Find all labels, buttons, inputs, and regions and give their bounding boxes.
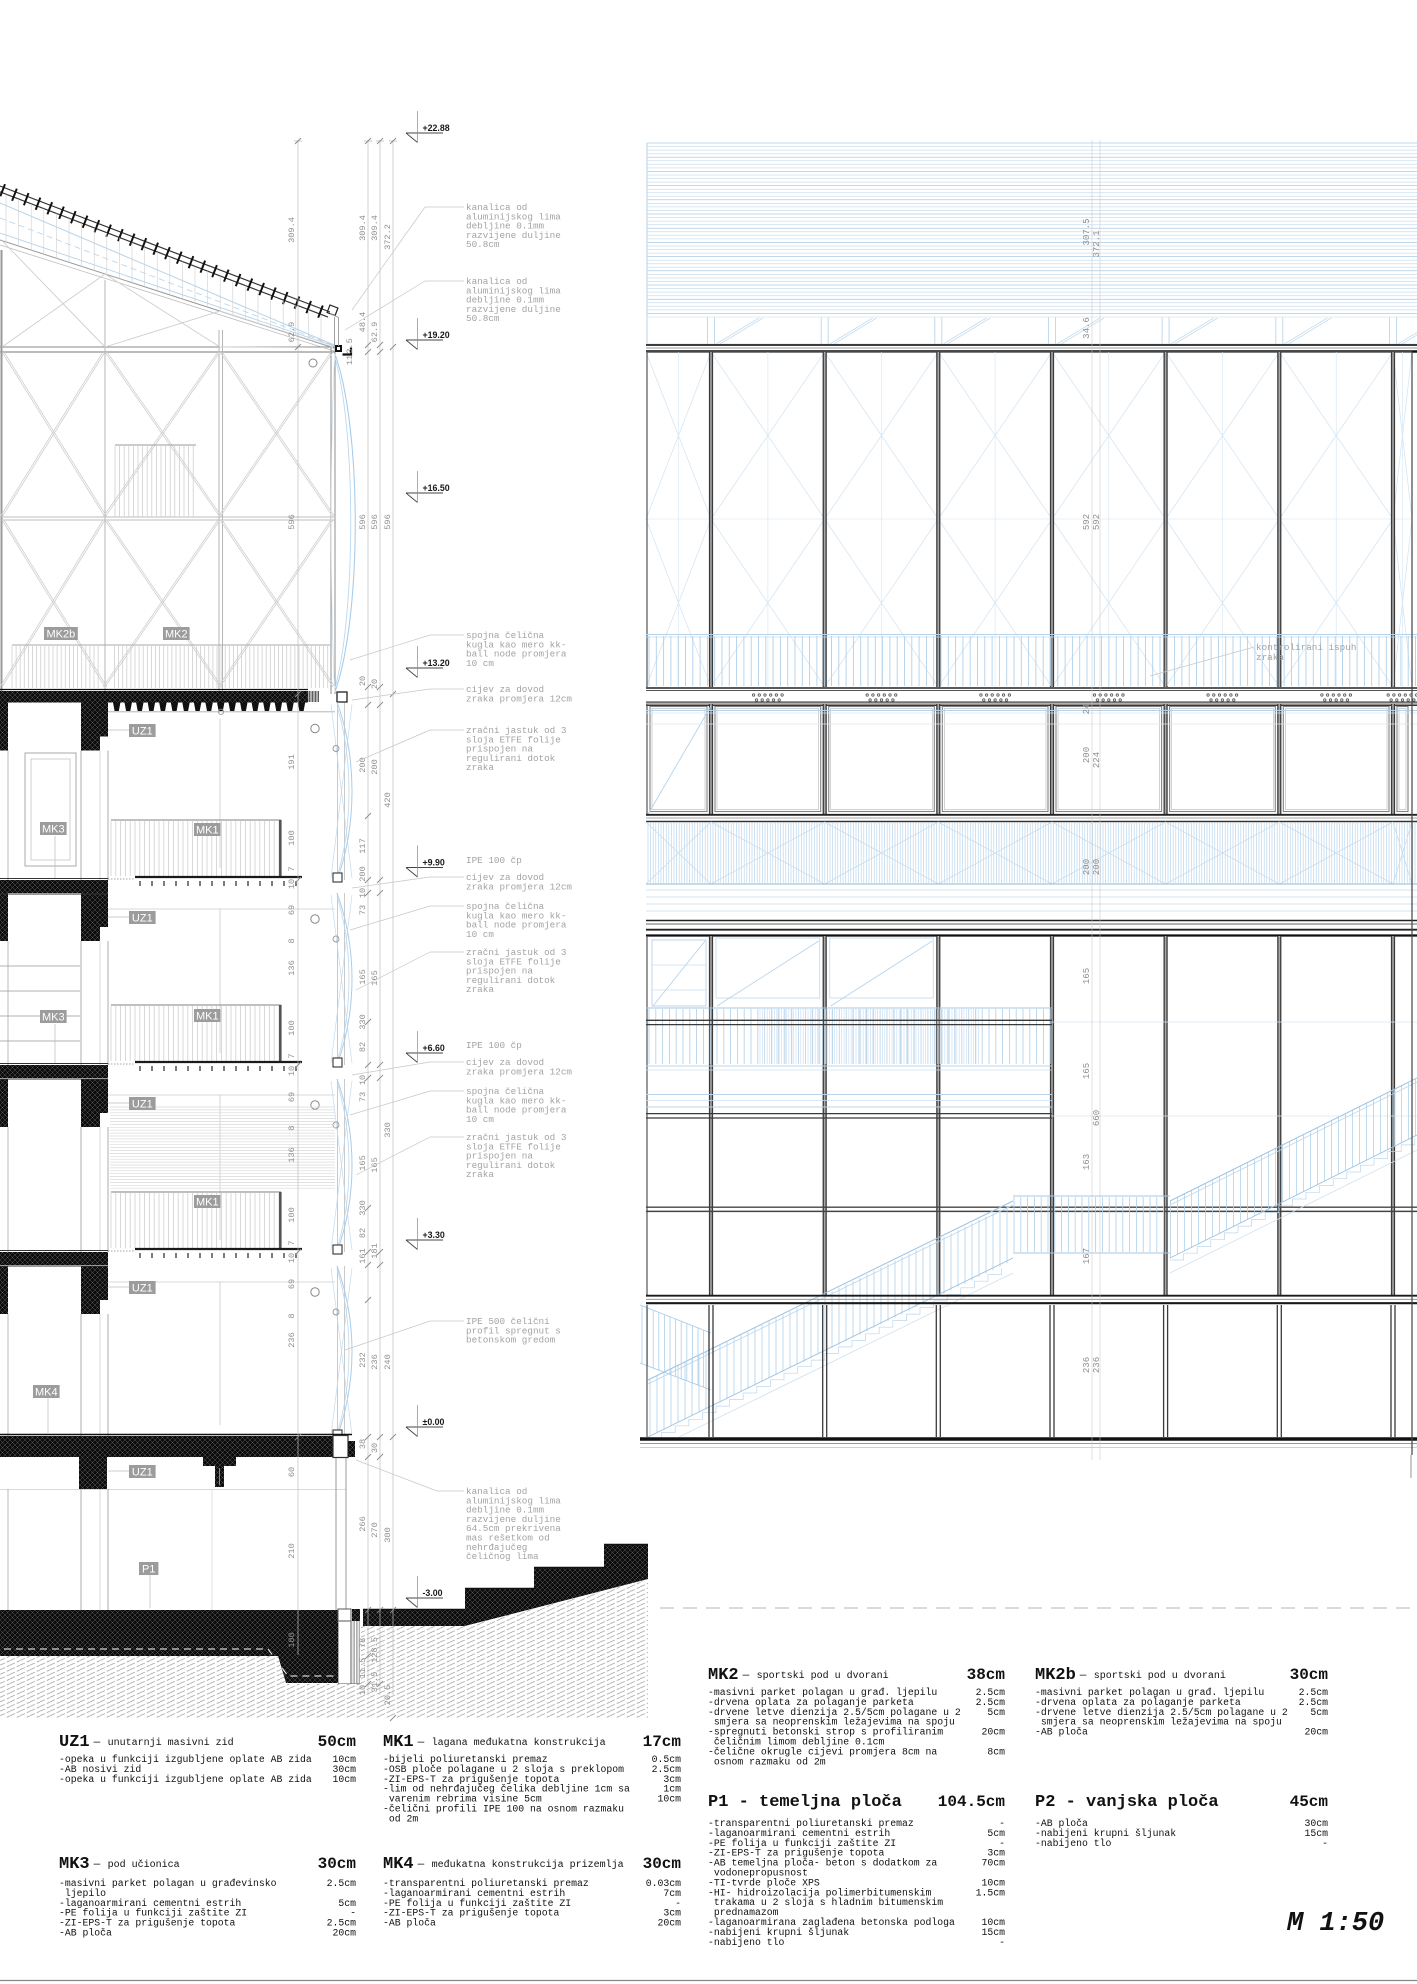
svg-text:MK1: MK1 <box>383 1733 414 1752</box>
svg-text:11.5: 11.5 <box>358 1658 368 1679</box>
svg-text:±0.00: ±0.00 <box>423 1417 445 1427</box>
svg-text:—: — <box>1079 1670 1087 1682</box>
svg-text:MK3: MK3 <box>42 824 65 836</box>
svg-text:69: 69 <box>287 905 297 915</box>
svg-text:+13.20: +13.20 <box>423 658 450 668</box>
svg-text:lagana međukatna konstrukcija: lagana međukatna konstrukcija <box>432 1737 606 1749</box>
svg-text:20: 20 <box>370 679 380 689</box>
svg-text:5cm: 5cm <box>987 1707 1005 1718</box>
svg-text:420: 420 <box>383 792 393 807</box>
svg-text:MK1: MK1 <box>196 1011 219 1023</box>
svg-text:191: 191 <box>287 754 297 769</box>
svg-text:5cm: 5cm <box>1310 1707 1328 1718</box>
svg-text:-AB ploča: -AB ploča <box>59 1928 112 1939</box>
svg-text:165: 165 <box>1082 1063 1092 1079</box>
svg-text:čeličnog lima: čeličnog lima <box>466 1551 539 1562</box>
svg-text:50cm: 50cm <box>318 1733 357 1751</box>
svg-text:zraka promjera 12cm: zraka promjera 12cm <box>466 693 572 704</box>
svg-text:660: 660 <box>1092 1110 1102 1126</box>
svg-text:266: 266 <box>358 1516 368 1531</box>
svg-text:sportski pod u dvorani: sportski pod u dvorani <box>1094 1670 1226 1682</box>
svg-text:30cm: 30cm <box>643 1855 682 1873</box>
svg-text:zraka promjera 12cm: zraka promjera 12cm <box>466 881 572 892</box>
svg-text:7: 7 <box>287 1053 297 1058</box>
svg-text:165: 165 <box>358 1155 368 1170</box>
svg-text:82: 82 <box>358 1042 368 1052</box>
svg-text:372.1: 372.1 <box>1092 230 1102 257</box>
svg-text:38cm: 38cm <box>967 1666 1006 1684</box>
svg-text:330: 330 <box>383 1122 393 1137</box>
svg-text:10 cm: 10 cm <box>466 658 494 669</box>
svg-text:3.5: 3.5 <box>345 338 355 353</box>
svg-text:34.6: 34.6 <box>1082 317 1092 339</box>
svg-text:IPE 100 čp: IPE 100 čp <box>466 855 522 866</box>
svg-text:24: 24 <box>1082 704 1092 715</box>
svg-text:69: 69 <box>287 1092 297 1102</box>
svg-text:+6.60: +6.60 <box>423 1043 445 1053</box>
svg-text:224: 224 <box>1092 752 1102 768</box>
svg-text:UZ1: UZ1 <box>132 726 153 738</box>
svg-text:+9.90: +9.90 <box>423 858 445 868</box>
svg-text:7: 7 <box>287 866 297 871</box>
svg-text:596: 596 <box>358 514 368 529</box>
svg-text:165: 165 <box>370 970 380 985</box>
svg-text:592: 592 <box>1092 514 1102 530</box>
svg-text:pod učionica: pod učionica <box>108 1859 180 1871</box>
svg-text:+3.30: +3.30 <box>423 1230 445 1240</box>
svg-text:zraka promjera 12cm: zraka promjera 12cm <box>466 1066 572 1077</box>
svg-text:-čelični profili IPE 100 na os: -čelični profili IPE 100 na osnom razmak… <box>383 1804 624 1815</box>
svg-text:MK4: MK4 <box>383 1855 414 1874</box>
svg-text:236: 236 <box>370 1354 380 1369</box>
svg-text:+16.50: +16.50 <box>423 483 450 493</box>
svg-text:1.5cm: 1.5cm <box>976 1887 1006 1898</box>
svg-text:10 cm: 10 cm <box>466 929 494 940</box>
svg-text:P1: P1 <box>142 1564 155 1576</box>
svg-text:100: 100 <box>287 830 297 845</box>
svg-text:MK3: MK3 <box>42 1012 65 1024</box>
svg-text:210: 210 <box>287 1543 297 1558</box>
svg-text:MK1: MK1 <box>196 1197 219 1209</box>
svg-text:48.4: 48.4 <box>358 312 368 333</box>
svg-text:17cm: 17cm <box>643 1733 682 1751</box>
svg-text:163: 163 <box>1082 1154 1092 1170</box>
svg-text:P1 - temeljna ploča: P1 - temeljna ploča <box>708 1793 902 1812</box>
svg-text:50.8cm: 50.8cm <box>466 239 500 250</box>
svg-text:45cm: 45cm <box>1290 1793 1329 1811</box>
svg-text:240: 240 <box>383 1354 393 1369</box>
svg-text:73: 73 <box>358 1092 368 1102</box>
svg-text:od 2m: od 2m <box>383 1813 418 1824</box>
svg-text:161: 161 <box>358 1248 368 1263</box>
svg-text:165: 165 <box>1082 968 1092 984</box>
svg-text:236: 236 <box>1092 1357 1102 1373</box>
svg-text:100: 100 <box>287 1207 297 1222</box>
svg-text:136: 136 <box>287 1147 297 1162</box>
svg-text:2.5cm: 2.5cm <box>327 1878 357 1889</box>
svg-text:128.5: 128.5 <box>370 1637 380 1663</box>
svg-text:236: 236 <box>1082 1357 1092 1373</box>
svg-text:30cm: 30cm <box>1290 1666 1329 1684</box>
svg-text:181: 181 <box>370 1243 380 1258</box>
svg-text:-nabijeno tlo: -nabijeno tlo <box>708 1937 785 1948</box>
svg-text:596: 596 <box>383 514 393 529</box>
svg-text:372.2: 372.2 <box>383 224 393 250</box>
svg-text:60: 60 <box>287 1467 297 1477</box>
svg-text:309.4: 309.4 <box>287 217 297 243</box>
svg-text:136: 136 <box>287 960 297 975</box>
svg-text:117: 117 <box>358 838 368 853</box>
svg-text:—: — <box>93 1737 101 1749</box>
svg-text:270: 270 <box>370 1522 380 1537</box>
svg-text:zraka: zraka <box>1256 652 1284 663</box>
svg-text:20cm: 20cm <box>332 1928 356 1939</box>
svg-text:-AB ploča: -AB ploča <box>1035 1727 1088 1738</box>
svg-text:100: 100 <box>287 1020 297 1035</box>
svg-text:38: 38 <box>358 1439 368 1449</box>
svg-text:200: 200 <box>1082 747 1092 763</box>
svg-text:62.9: 62.9 <box>287 322 297 343</box>
svg-text:UZ1: UZ1 <box>132 1099 153 1111</box>
svg-text:200: 200 <box>370 759 380 774</box>
svg-text:70cm: 70cm <box>981 1858 1005 1869</box>
svg-text:82: 82 <box>358 1228 368 1238</box>
svg-text:200: 200 <box>1092 859 1102 875</box>
svg-text:31.5: 31.5 <box>370 1672 380 1693</box>
svg-text:73: 73 <box>358 905 368 915</box>
svg-text:165: 165 <box>358 969 368 984</box>
svg-text:-: - <box>999 1937 1005 1948</box>
svg-text:—: — <box>417 1737 425 1749</box>
svg-text:8: 8 <box>287 1125 297 1130</box>
svg-text:sportski pod u dvorani: sportski pod u dvorani <box>757 1670 889 1682</box>
svg-text:10 cm: 10 cm <box>466 1114 494 1125</box>
svg-text:20cm: 20cm <box>657 1918 681 1929</box>
svg-text:MK2: MK2 <box>165 629 188 641</box>
svg-text:200: 200 <box>358 866 368 881</box>
svg-text:međukatna konstrukcija prizeml: međukatna konstrukcija prizemlja <box>432 1859 624 1871</box>
svg-text:10: 10 <box>358 1685 368 1695</box>
svg-text:330: 330 <box>358 1200 368 1215</box>
svg-text:P2 - vanjska ploča: P2 - vanjska ploča <box>1035 1793 1219 1812</box>
svg-text:62.9: 62.9 <box>370 322 380 343</box>
svg-text:10: 10 <box>287 879 297 889</box>
svg-text:167: 167 <box>1082 1248 1092 1264</box>
svg-text:20cm: 20cm <box>1304 1727 1328 1738</box>
svg-text:-nabijeno tlo: -nabijeno tlo <box>1035 1838 1112 1849</box>
svg-text:MK4: MK4 <box>35 1387 58 1399</box>
svg-text:UZ1: UZ1 <box>59 1733 90 1752</box>
svg-text:—: — <box>93 1859 101 1871</box>
svg-text:592: 592 <box>1082 514 1092 530</box>
svg-text:200: 200 <box>1082 859 1092 875</box>
svg-text:UZ1: UZ1 <box>132 913 153 925</box>
svg-text:betonskom gredom: betonskom gredom <box>466 1335 556 1346</box>
svg-text:UZ1: UZ1 <box>132 1467 153 1479</box>
svg-text:330: 330 <box>358 1014 368 1029</box>
svg-text:300: 300 <box>383 1527 393 1542</box>
svg-text:—: — <box>417 1859 425 1871</box>
svg-text:IPE 100 čp: IPE 100 čp <box>466 1040 522 1051</box>
svg-text:50.8cm: 50.8cm <box>466 313 500 324</box>
svg-text:zraka: zraka <box>466 762 494 773</box>
svg-text:78: 78 <box>358 1638 368 1648</box>
svg-text:zraka: zraka <box>466 1169 494 1180</box>
svg-text:UZ1: UZ1 <box>132 1283 153 1295</box>
svg-text:10: 10 <box>358 888 368 898</box>
svg-text:+22.88: +22.88 <box>423 123 450 133</box>
svg-text:10cm: 10cm <box>657 1794 681 1805</box>
svg-text:8cm: 8cm <box>987 1746 1005 1757</box>
svg-text:596: 596 <box>287 514 297 529</box>
svg-text:104.5cm: 104.5cm <box>938 1793 1006 1811</box>
svg-text:10cm: 10cm <box>332 1774 356 1785</box>
svg-text:MK3: MK3 <box>59 1855 90 1874</box>
svg-text:osnom razmaku od 2m: osnom razmaku od 2m <box>708 1756 826 1767</box>
svg-text:11: 11 <box>345 355 355 365</box>
svg-text:30cm: 30cm <box>318 1855 357 1873</box>
svg-text:307.5: 307.5 <box>1082 218 1092 245</box>
svg-text:200: 200 <box>358 757 368 772</box>
svg-text:MK2b: MK2b <box>1035 1666 1076 1685</box>
svg-text:-opeka u funkciji izgubljene o: -opeka u funkciji izgubljene oplate AB z… <box>59 1774 312 1785</box>
svg-text:20cm: 20cm <box>981 1727 1005 1738</box>
svg-text:100: 100 <box>287 1632 297 1647</box>
svg-text:zraka: zraka <box>466 984 494 995</box>
svg-text:-3.00: -3.00 <box>423 1588 443 1598</box>
svg-text:—: — <box>742 1670 750 1682</box>
svg-text:309.4: 309.4 <box>370 215 380 241</box>
svg-text:30: 30 <box>370 1443 380 1453</box>
svg-text:MK2: MK2 <box>708 1666 739 1685</box>
svg-text:M 1:50: M 1:50 <box>1286 1909 1384 1939</box>
svg-text:-: - <box>1322 1838 1328 1849</box>
svg-text:MK2b: MK2b <box>47 629 76 641</box>
svg-text:69: 69 <box>287 1279 297 1289</box>
svg-text:+19.20: +19.20 <box>423 330 450 340</box>
svg-text:20.5: 20.5 <box>383 1685 393 1706</box>
svg-text:8: 8 <box>287 1313 297 1318</box>
svg-text:7: 7 <box>287 1240 297 1245</box>
svg-text:309.4: 309.4 <box>358 215 368 241</box>
svg-text:232: 232 <box>358 1352 368 1367</box>
svg-text:unutarnji masivni zid: unutarnji masivni zid <box>108 1737 234 1749</box>
svg-text:20: 20 <box>358 676 368 686</box>
svg-text:MK1: MK1 <box>196 825 219 837</box>
svg-text:-AB ploča: -AB ploča <box>383 1918 436 1929</box>
svg-text:596: 596 <box>370 514 380 529</box>
svg-text:236: 236 <box>287 1332 297 1347</box>
svg-text:8: 8 <box>287 938 297 943</box>
